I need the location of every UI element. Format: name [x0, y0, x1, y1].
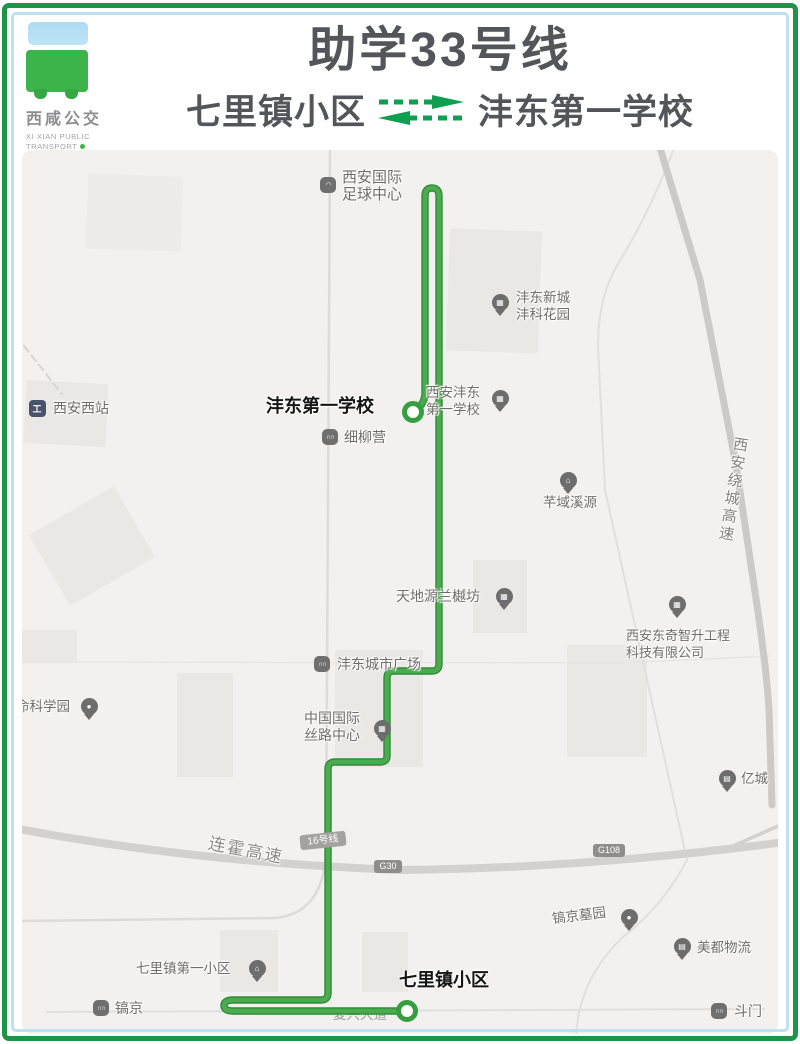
station-marker-qilizhen — [399, 1003, 416, 1020]
bus-icon — [26, 50, 88, 92]
label-line: 斗门 — [734, 1003, 762, 1020]
bidirectional-arrows-icon — [376, 92, 468, 128]
poi-label-qilizhen_first_community: 七里镇第一小区 — [136, 960, 231, 977]
label-line: 西安西站 — [53, 400, 109, 417]
building-map-icon: ▦ — [492, 390, 509, 407]
dot-map-icon: ● — [81, 698, 98, 715]
poi-label-xiliuying: 细柳营 — [344, 429, 386, 446]
label-line: 沣科花园 — [516, 306, 570, 323]
label-line: 七里镇小区 — [399, 972, 489, 989]
page-title: 助学33号线 — [100, 22, 780, 80]
badge-g108: G108 — [593, 844, 625, 857]
road-minor-east — [576, 150, 687, 1034]
dot-map-icon: ● — [621, 909, 638, 926]
label-line: 第一学校 — [426, 401, 480, 418]
title-block: 助学33号线 七里镇小区 沣东第一学校 — [100, 22, 780, 135]
label-line: 丝路中心 — [304, 727, 360, 744]
label-line: 沣东第一学校 — [266, 398, 374, 415]
building-map-icon: ▦ — [492, 294, 509, 311]
rail-map-icon: 工 — [29, 400, 46, 417]
building-map-icon: ▦ — [669, 596, 686, 613]
label-line: 美都物流 — [697, 939, 751, 956]
poi-label-dongqi_company: 西安东奇智升工程科技有限公司 — [626, 627, 730, 661]
poi-label-tiandiyuan: 天地源兰樾坊 — [396, 588, 480, 605]
label-line: 中国国际 — [304, 710, 360, 727]
poi-label-xian_west_station: 西安西站 — [53, 400, 109, 417]
poi-label-haojing: 镐京 — [115, 1000, 143, 1017]
station-label-fengdong_school: 沣东第一学校 — [266, 398, 374, 415]
label-line: 命科学园 — [22, 698, 70, 715]
label-line: 足球中心 — [342, 186, 402, 203]
label-line: 西安沣东 — [426, 384, 480, 401]
destination-label: 沣东第一学校 — [478, 84, 694, 135]
station-label-qilizhen: 七里镇小区 — [399, 972, 489, 989]
label-line: 芊域溪源 — [543, 494, 597, 511]
poi-label-fengdong_plaza: 沣东城市广场 — [337, 656, 421, 673]
poi-label-science_park: 命科学园 — [22, 698, 70, 715]
road-ring-expressway — [660, 150, 772, 805]
label-line: 沣东新城 — [516, 289, 570, 306]
badge-g30: G30 — [374, 860, 402, 873]
house-map-icon: ⌂ — [249, 960, 266, 977]
label-line: 细柳营 — [344, 429, 386, 446]
bus-wheel-icon — [65, 89, 78, 99]
poi-label-silk_road_center: 中国国际丝路中心 — [304, 710, 360, 744]
grid-map-icon: ▤ — [719, 770, 736, 787]
bus-wheel-icon — [34, 89, 47, 99]
poi-label-doumen: 斗门 — [734, 1003, 762, 1020]
header: 西咸公交 XI XIAN PUBLIC TRANSPORT 助学33号线 七里镇… — [0, 0, 800, 150]
house-map-icon: ⌂ — [560, 472, 577, 489]
arch-map-icon: ∩∩ — [711, 1003, 727, 1019]
label-line: 西安东奇智升工程 — [626, 627, 730, 644]
route-endpoints: 七里镇小区 沣东第一学校 — [100, 84, 780, 135]
station-marker-fengdong-school — [405, 404, 422, 421]
building-map-icon: ▦ — [496, 588, 513, 605]
logo-green-dot-icon — [80, 144, 85, 149]
label-line: 西安国际 — [342, 169, 402, 186]
label-line: 天地源兰樾坊 — [396, 588, 480, 605]
logo-blue-bar-icon — [28, 22, 88, 45]
label-line: 沣东城市广场 — [337, 656, 421, 673]
arch-map-icon: ∩∩ — [93, 1000, 109, 1016]
poi-label-yicheng: 亿城 — [741, 770, 768, 787]
poi-label-football_center: 西安国际足球中心 — [342, 169, 402, 203]
logo-name-en: XI XIAN PUBLIC TRANSPORT — [26, 132, 122, 152]
grid-map-icon: ▤ — [674, 938, 691, 955]
poi-label-qianyu_xiyuan: 芊域溪源 — [543, 494, 597, 511]
label-line: 科技有限公司 — [626, 644, 730, 661]
poi-label-fengdong_school_poi: 西安沣东第一学校 — [426, 384, 480, 418]
poi-label-fengke_garden: 沣东新城沣科花园 — [516, 289, 570, 323]
origin-label: 七里镇小区 — [186, 84, 366, 135]
poi-label-meidu_logistics: 美都物流 — [697, 939, 751, 956]
label-line: 七里镇第一小区 — [136, 960, 231, 977]
label-line: 亿城 — [741, 770, 768, 787]
building-map-icon: ▦ — [374, 720, 391, 737]
label-line: 镐京 — [115, 1000, 143, 1017]
route-map: 复兴大道 连霍高速 西安绕城高速 16号线 G30 G108 ◠西安国际足球中心… — [22, 150, 778, 1034]
arch-map-icon: ∩∩ — [322, 429, 338, 445]
stadium-map-icon: ◠ — [320, 177, 336, 193]
arch-map-icon: ∩∩ — [314, 656, 330, 672]
